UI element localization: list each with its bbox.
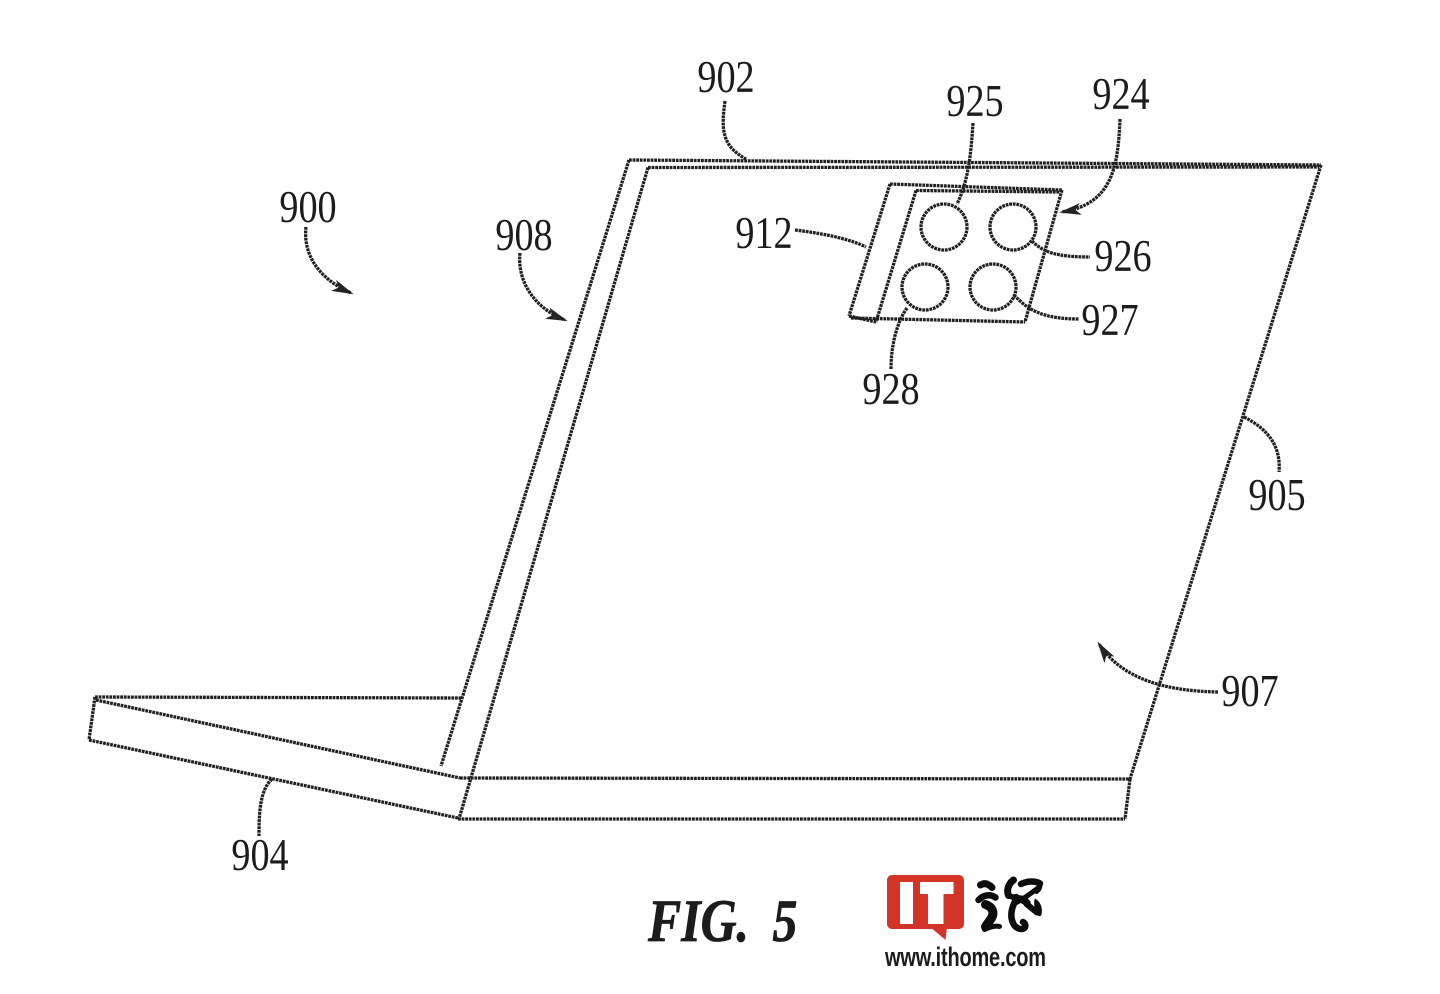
svg-text:908: 908 [495, 211, 552, 261]
svg-text:907: 907 [1221, 667, 1278, 717]
svg-text:912: 912 [735, 209, 792, 259]
svg-text:905: 905 [1248, 471, 1305, 521]
svg-text:925: 925 [946, 77, 1003, 127]
svg-text:www.ithome.com: www.ithome.com [884, 942, 1046, 973]
svg-text:904: 904 [231, 831, 288, 881]
svg-text:900: 900 [279, 183, 336, 233]
svg-text:928: 928 [862, 365, 919, 415]
svg-text:926: 926 [1094, 232, 1151, 282]
svg-text:902: 902 [697, 53, 754, 103]
svg-text:5: 5 [773, 888, 798, 954]
svg-text:927: 927 [1081, 296, 1138, 346]
svg-text:924: 924 [1092, 70, 1149, 120]
svg-text:FIG.: FIG. [647, 888, 749, 954]
